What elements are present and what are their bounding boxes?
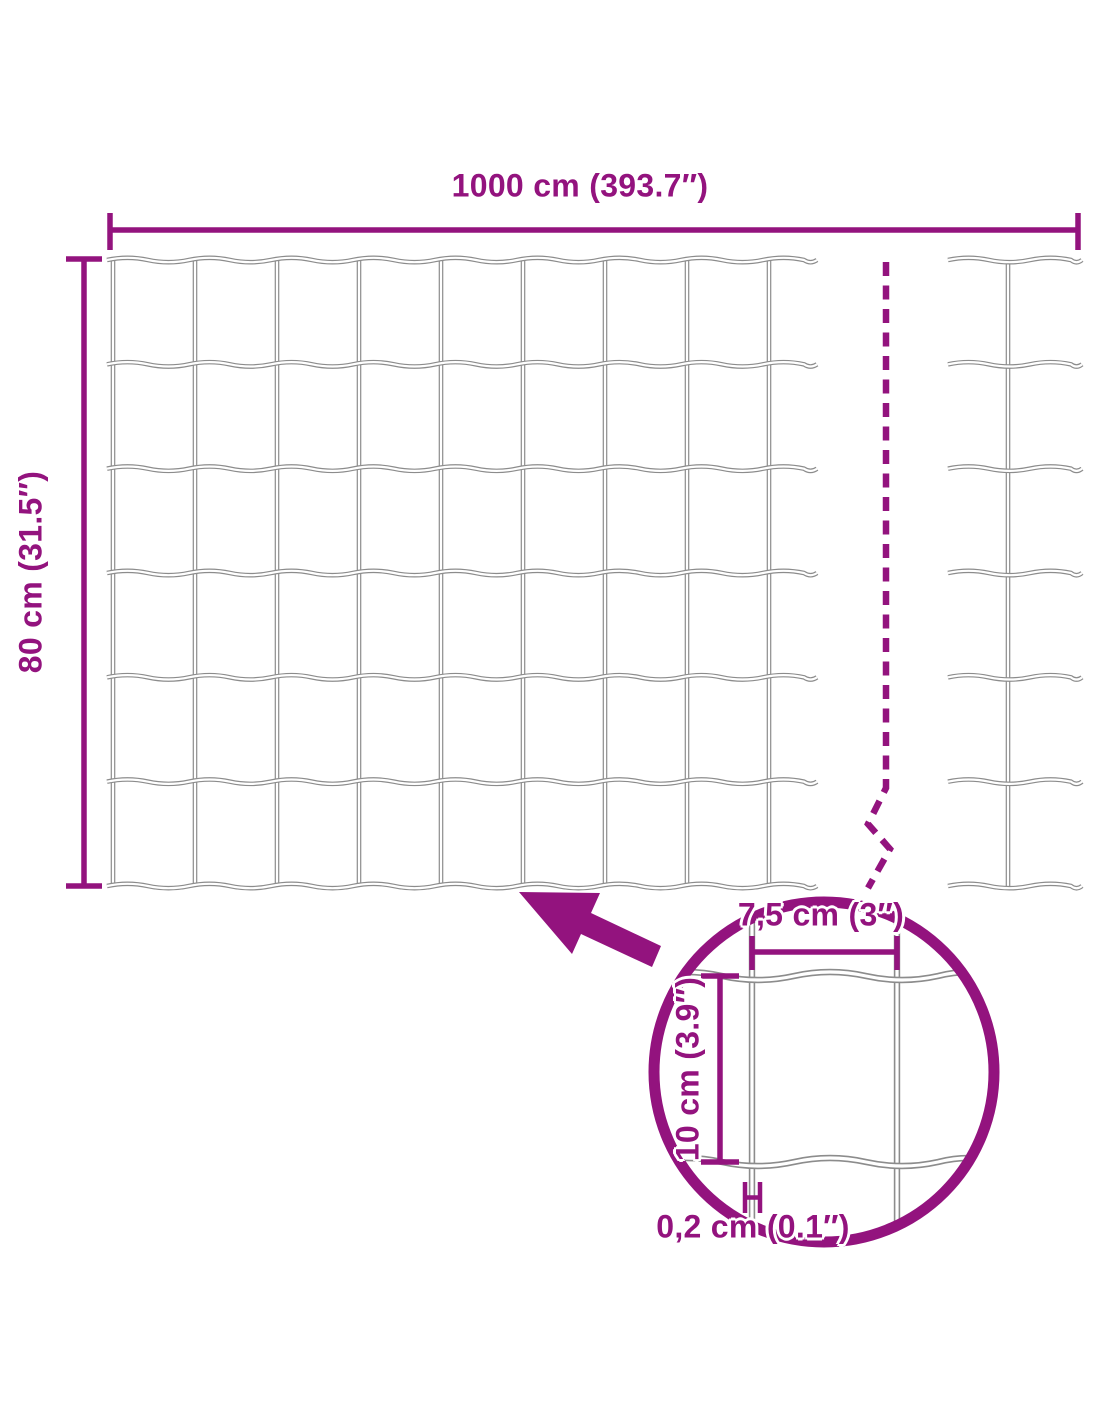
diagram-canvas — [0, 0, 1100, 1422]
width-dimension-line — [110, 213, 1078, 250]
fence-mesh-main — [107, 258, 817, 888]
zoom-arrow-icon — [519, 892, 661, 967]
total-width-label: 1000 cm (393.7″) — [452, 168, 709, 205]
fence-dimension-diagram: 1000 cm (393.7″) 80 cm (31.5″) 7,5 cm (3… — [0, 0, 1100, 1422]
fence-mesh-right — [948, 258, 1082, 888]
panel-break-line — [868, 262, 890, 888]
height-dimension-line — [66, 259, 102, 886]
total-height-label: 80 cm (31.5″) — [13, 471, 50, 673]
wire-thickness-label: 0,2 cm (0.1″) — [656, 1209, 850, 1246]
mesh-cell-width-label: 7,5 cm (3″) — [738, 897, 904, 934]
mesh-cell-height-label: 10 cm (3.9″) — [670, 977, 707, 1161]
